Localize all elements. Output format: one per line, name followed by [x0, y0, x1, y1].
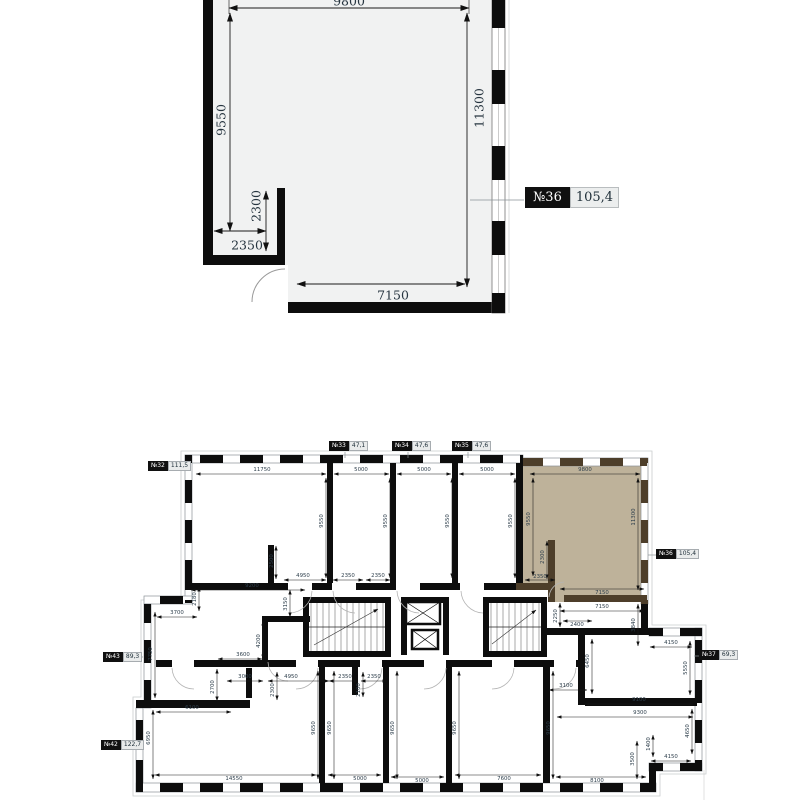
- dimension-label: 7150: [595, 590, 609, 596]
- detail-window-wall: [492, 0, 505, 313]
- dimension-label: 9550: [445, 514, 451, 528]
- dimension-label: 9550: [383, 514, 389, 528]
- dimension-label: 4650: [685, 724, 691, 738]
- selected-unit-36[interactable]: [523, 458, 648, 602]
- unit-number: №42: [101, 740, 121, 750]
- unit-number: №35: [452, 441, 472, 451]
- dimension-label: 7150: [377, 288, 409, 303]
- unit-number: №36: [525, 187, 570, 208]
- dimension-label: 9550: [508, 514, 514, 528]
- dimension-label: 2300: [270, 683, 276, 697]
- dimension-label: 11750: [253, 467, 271, 473]
- dimension-label: 2500: [269, 554, 275, 568]
- unit-label-42[interactable]: №42 122,7: [101, 740, 144, 750]
- dimension-label: 9650: [452, 721, 458, 735]
- staircase-left: [309, 603, 385, 651]
- detail-plan: [203, 0, 524, 313]
- dimension-label: 4150: [664, 640, 678, 646]
- dimension-label: 2350: [231, 238, 263, 253]
- dimension-label: 3500: [630, 752, 636, 766]
- dimension-label: 2250: [553, 609, 559, 623]
- dimension-label: 6100: [185, 705, 199, 711]
- unit-area: 111,5: [168, 461, 191, 471]
- unit-label-36-detail[interactable]: №36 105,4: [525, 187, 619, 208]
- dimension-label: 9800: [333, 0, 365, 9]
- dimension-label: 6450: [585, 654, 591, 668]
- elevator-shafts: [406, 602, 440, 649]
- dimension-label: 7600: [497, 776, 511, 782]
- dimension-label: 2300: [249, 190, 264, 222]
- unit-number: №43: [103, 652, 123, 662]
- dimension-label: 2350: [533, 574, 547, 580]
- unit-number: №37: [699, 650, 719, 660]
- dimension-label: 5000: [480, 467, 494, 473]
- door-arc: [252, 269, 285, 302]
- dimension-label: 7750: [148, 647, 154, 661]
- unit-area: 122,7: [121, 740, 144, 750]
- dimension-label: 5000: [354, 467, 368, 473]
- dimension-label: 9650: [546, 721, 552, 735]
- dimension-label: 11300: [631, 508, 637, 526]
- dimension-label: 9300: [633, 710, 647, 716]
- dimension-label: 2350: [338, 674, 352, 680]
- dimension-label: 9100: [632, 697, 646, 703]
- dimension-label: 3840: [631, 618, 637, 632]
- dimension-label: 2350: [341, 573, 355, 579]
- unit-area: 89,3: [123, 652, 142, 662]
- dimension-label: 2300: [540, 550, 546, 564]
- dimension-label: 9550: [319, 514, 325, 528]
- dimension-label: 2700: [210, 680, 216, 694]
- dimension-label: 4950: [284, 674, 298, 680]
- unit-number: №34: [392, 441, 412, 451]
- dimension-label: 2100: [356, 683, 362, 697]
- unit-area: 47,1: [349, 441, 368, 451]
- dimension-label: 2180: [192, 592, 198, 606]
- dimension-label: 9550: [526, 512, 532, 526]
- dimension-label: 2350: [371, 573, 385, 579]
- unit-number: №33: [329, 441, 349, 451]
- dimension-label: 9200: [245, 583, 259, 589]
- dimension-label: 9800: [578, 467, 592, 473]
- dimension-label: 5550: [683, 661, 689, 675]
- dimension-label: 5000: [417, 467, 431, 473]
- dimension-label: 2400: [570, 622, 584, 628]
- dimension-label: 9650: [390, 721, 396, 735]
- floorplan-viewer: 9800955011300230023507150117505000500050…: [0, 0, 800, 800]
- dimension-label: 4200: [256, 634, 262, 648]
- plan-canvas: 9800955011300230023507150117505000500050…: [0, 0, 800, 800]
- unit-label-36[interactable]: №36 105,4: [656, 549, 699, 559]
- dimension-label: 4150: [664, 754, 678, 760]
- unit-area: 105,4: [676, 549, 699, 559]
- dimension-label: 4950: [296, 573, 310, 579]
- dimension-label: 3150: [283, 597, 289, 611]
- unit-area: 105,4: [570, 187, 619, 208]
- unit-label-34[interactable]: №34 47,6: [392, 441, 431, 451]
- unit-area: 47,6: [472, 441, 491, 451]
- dimension-label: 3100: [559, 683, 573, 689]
- unit-label-43[interactable]: №43 89,3: [103, 652, 142, 662]
- unit-label-37[interactable]: №37 69,3: [699, 650, 738, 660]
- dimension-label: 3000: [238, 674, 252, 680]
- dimension-label: 8100: [590, 778, 604, 784]
- dimension-label: 14550: [225, 776, 243, 782]
- dimension-label: 9550: [214, 104, 229, 136]
- dimension-label: 5000: [353, 776, 367, 782]
- staircase-right: [489, 603, 541, 651]
- unit-label-32[interactable]: №32 111,5: [148, 461, 191, 471]
- floor-plan: [133, 451, 706, 800]
- dimension-label: 3600: [236, 652, 250, 658]
- dimension-label: 6950: [146, 731, 152, 745]
- dimension-label: 2350: [367, 674, 381, 680]
- unit-number: №32: [148, 461, 168, 471]
- dimension-label: 9650: [311, 721, 317, 735]
- dimension-label: 5000: [415, 778, 429, 784]
- unit-label-35[interactable]: №35 47,6: [452, 441, 491, 451]
- unit-label-33[interactable]: №33 47,1: [329, 441, 368, 451]
- dimension-label: 9650: [327, 721, 333, 735]
- dimension-label: 3700: [170, 610, 184, 616]
- unit-area: 69,3: [719, 650, 738, 660]
- dimension-label: 1400: [646, 737, 652, 751]
- dimension-label: 11300: [472, 88, 487, 128]
- unit-number: №36: [656, 549, 676, 559]
- dimension-label: 7150: [595, 604, 609, 610]
- unit-area: 47,6: [412, 441, 431, 451]
